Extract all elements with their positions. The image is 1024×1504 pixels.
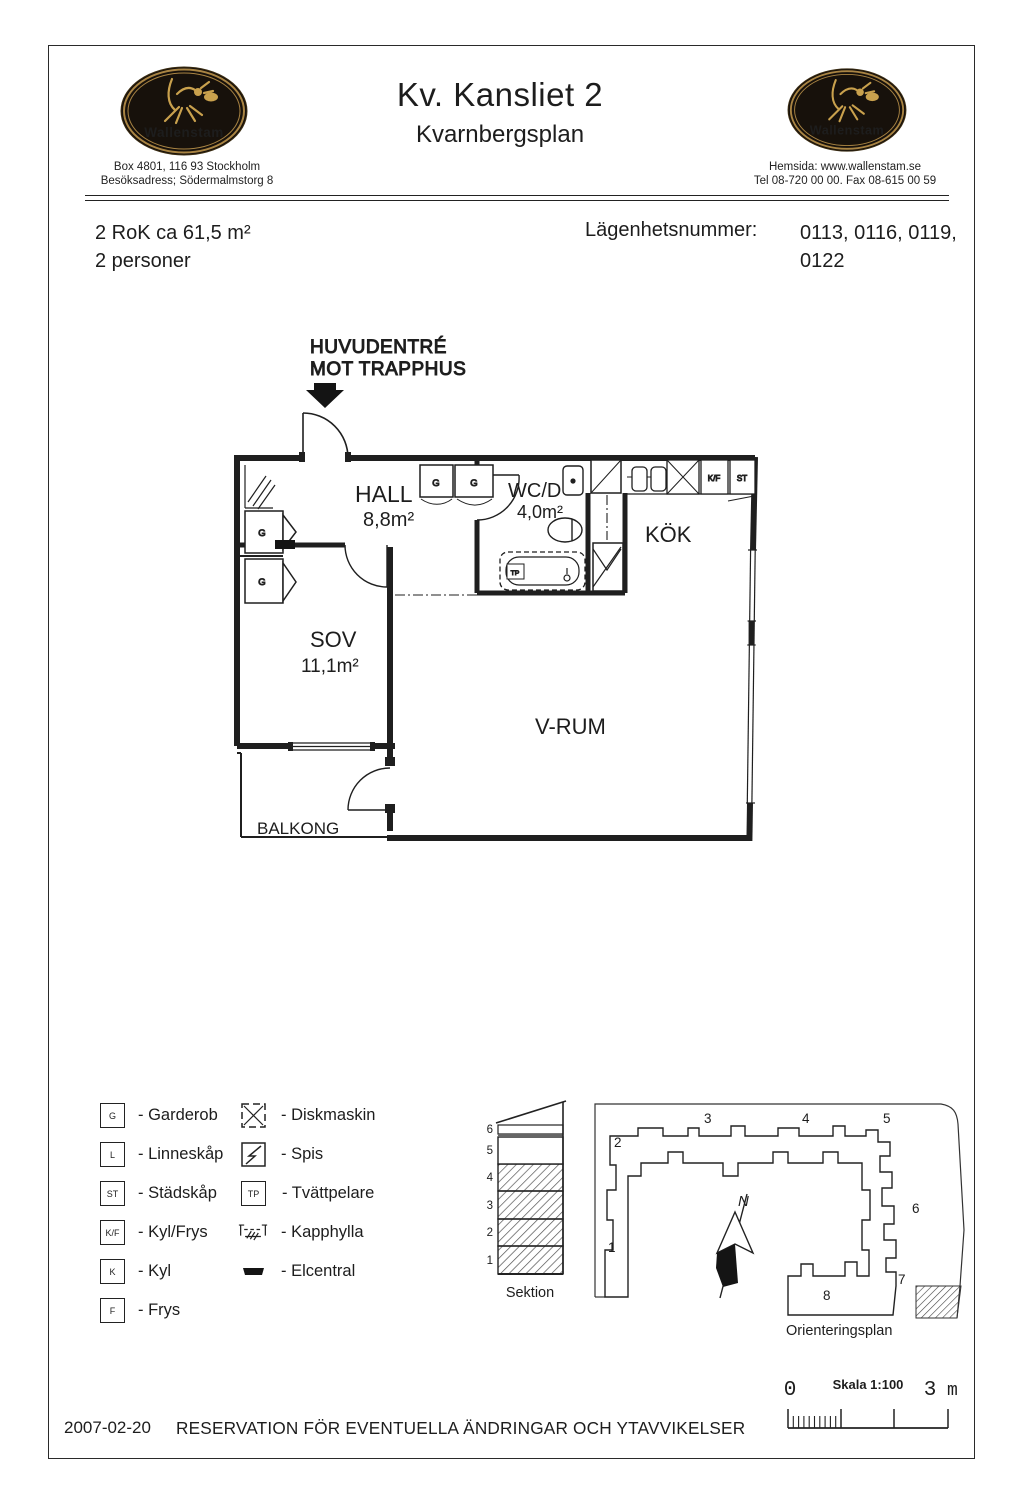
reservation-note: RESERVATION FÖR EVENTUELLA ÄNDRINGAR OCH…	[176, 1418, 745, 1439]
kapphylla-label: - Kapphylla	[281, 1223, 364, 1242]
entrance-arrow-icon	[306, 383, 344, 408]
legend-row-kylfrys: K/F - Kyl/Frys	[100, 1213, 208, 1252]
tvattpelare-symbol: TP	[241, 1181, 266, 1206]
apartment-number-label: Lägenhetsnummer:	[585, 219, 757, 242]
stadskap-label: - Städskåp	[138, 1184, 217, 1203]
apartment-size: 2 RoK ca 61,5 m²	[95, 219, 251, 247]
floorplan-sheet: Wallenstam Box 4801, 116 93 Stockholm Be…	[0, 0, 1024, 1504]
kylfrys-symbol: K/F	[100, 1220, 125, 1245]
linneskap-symbol: L	[100, 1142, 125, 1167]
legend-row-elcentral: - Elcentral	[238, 1252, 355, 1291]
scale-bar: 0 Skala 1:100 3 m	[780, 1372, 960, 1440]
tvattpelare-label: - Tvättpelare	[282, 1184, 374, 1203]
legend-row-garderob: G - Garderob	[100, 1096, 218, 1135]
kylfrys-label: K/F	[708, 474, 721, 483]
hatched-area	[916, 1286, 961, 1318]
apartment-persons: 2 personer	[95, 247, 251, 275]
legend-row-tvattpelare: TP - Tvättpelare	[238, 1174, 374, 1213]
wardrobe-g-label: G	[470, 478, 477, 489]
hall-label: HALL	[355, 481, 413, 507]
hall-wardrobes	[420, 465, 493, 505]
floor-number: 1	[487, 1255, 493, 1267]
spis-label: - Spis	[281, 1145, 323, 1164]
contact-line2: Tel 08-720 00 00. Fax 08-615 00 59	[735, 174, 955, 188]
floor-number: 4	[487, 1172, 494, 1184]
unit-number: 2	[614, 1135, 622, 1150]
apartment-numbers-line1: 0113, 0116, 0119,	[800, 219, 957, 247]
orientation-caption: Orienteringsplan	[786, 1323, 892, 1339]
wardrobe-g-label: G	[432, 478, 439, 489]
garderob-symbol: G	[100, 1103, 125, 1128]
legend-row-diskmaskin: - Diskmaskin	[238, 1096, 375, 1135]
floor-plan: HUVUDENTRÉ MOT TRAPPHUS	[215, 325, 775, 855]
orientation-plan: 1 2 3 4 5 6 7 8 N Orienteringsplan	[583, 1090, 978, 1342]
apartment-numbers-line2: 0122	[800, 247, 957, 275]
wallenstam-logo-right: Wallenstam	[785, 66, 909, 154]
north-label: N	[738, 1193, 749, 1210]
floor-number: 6	[487, 1124, 493, 1136]
floor-number: 2	[487, 1227, 493, 1239]
address-line1: Box 4801, 116 93 Stockholm	[62, 160, 312, 174]
legend-row-kapphylla: - Kapphylla	[238, 1213, 364, 1252]
sov-window	[288, 742, 375, 751]
unit-number: 5	[883, 1111, 891, 1126]
contact-line1: Hemsida: www.wallenstam.se	[735, 160, 955, 174]
frys-label: - Frys	[138, 1301, 180, 1320]
sov-label: SOV	[310, 627, 357, 652]
floor-number: 3	[487, 1200, 493, 1212]
kylfrys-label: - Kyl/Frys	[138, 1223, 208, 1242]
wallenstam-logo-left: Wallenstam	[118, 64, 250, 158]
document-title: Kv. Kansliet 2	[280, 76, 720, 114]
document-date: 2007-02-20	[64, 1418, 151, 1438]
linneskap-label: - Linneskåp	[138, 1145, 223, 1164]
sender-address: Box 4801, 116 93 Stockholm Besöksadress;…	[62, 160, 312, 188]
unit-number: 6	[912, 1201, 920, 1216]
unit-number: 4	[802, 1111, 810, 1126]
unit-number: 1	[608, 1240, 616, 1255]
entrance-label-line1: HUVUDENTRÉ	[310, 337, 447, 358]
contact-info: Hemsida: www.wallenstam.se Tel 08-720 00…	[735, 160, 955, 188]
vrum-window	[746, 550, 757, 803]
hall-area: 8,8m²	[363, 509, 414, 531]
logo-wordmark: Wallenstam	[810, 123, 884, 137]
stadskap-label: ST	[737, 474, 747, 483]
building-outline	[605, 1126, 896, 1315]
garderob-label: - Garderob	[138, 1106, 218, 1125]
kyl-label: - Kyl	[138, 1262, 171, 1281]
unit-number: 7	[898, 1272, 906, 1287]
stadskap-symbol: ST	[100, 1181, 125, 1206]
scale-ticks	[788, 1409, 948, 1428]
legend-row-spis: - Spis	[238, 1135, 323, 1174]
diskmaskin-label: - Diskmaskin	[281, 1106, 375, 1125]
scale-title: Skala 1:100	[833, 1377, 904, 1392]
frys-symbol: F	[100, 1298, 125, 1323]
floor-number: 5	[487, 1145, 493, 1157]
kitchen-counter	[625, 460, 755, 501]
section-floor-numbers: 6 5 4 3 2 1	[487, 1124, 494, 1267]
section-diagram: 6 5 4 3 2 1 Sektion	[478, 1092, 593, 1312]
kok-label: KÖK	[645, 522, 692, 547]
wcd-label: WC/D	[508, 480, 561, 502]
vrum-label: V-RUM	[535, 714, 606, 739]
washbasin	[563, 466, 583, 495]
unit-number: 3	[704, 1111, 712, 1126]
elcentral-symbol	[275, 540, 295, 549]
legend-row-stadskap: ST - Städskåp	[100, 1174, 217, 1213]
balcony-door	[348, 768, 390, 810]
vent-chase	[591, 460, 623, 591]
spis-icon	[240, 1141, 267, 1168]
sov-door	[345, 545, 387, 587]
entrance-door	[299, 413, 351, 462]
sov-area: 11,1m²	[301, 656, 359, 677]
section-caption: Sektion	[506, 1285, 554, 1301]
apartment-info: 2 RoK ca 61,5 m² 2 personer	[95, 219, 251, 275]
legend-row-kyl: K - Kyl	[100, 1252, 171, 1291]
apartment-numbers: 0113, 0116, 0119, 0122	[800, 219, 957, 275]
wardrobe-g-label: G	[258, 528, 265, 539]
wcd-area: 4,0m²	[517, 502, 563, 522]
document-subtitle: Kvarnbergsplan	[280, 121, 720, 149]
balkong-label: BALKONG	[257, 819, 339, 838]
scale-end: 3	[924, 1379, 937, 1402]
entrance-label-line2: MOT TRAPPHUS	[310, 359, 466, 380]
wardrobe-g-label: G	[258, 577, 265, 588]
scale-unit: m	[947, 1381, 958, 1401]
unit-number: 8	[823, 1288, 831, 1303]
tvattpelare-label: TP	[511, 570, 520, 577]
legend-row-frys: F - Frys	[100, 1291, 180, 1330]
kapphylla-icon	[238, 1221, 268, 1245]
address-line2: Besöksadress; Södermalmstorg 8	[62, 174, 312, 188]
diskmaskin-icon	[240, 1102, 267, 1129]
elcentral-label: - Elcentral	[281, 1262, 355, 1281]
kyl-symbol: K	[100, 1259, 125, 1284]
elcentral-icon	[240, 1263, 267, 1281]
logo-wordmark: Wallenstam	[144, 125, 224, 140]
header-divider	[85, 195, 949, 201]
kapphylla-symbol	[245, 465, 275, 509]
legend-row-linneskap: L - Linneskåp	[100, 1135, 223, 1174]
scale-zero: 0	[784, 1379, 797, 1402]
